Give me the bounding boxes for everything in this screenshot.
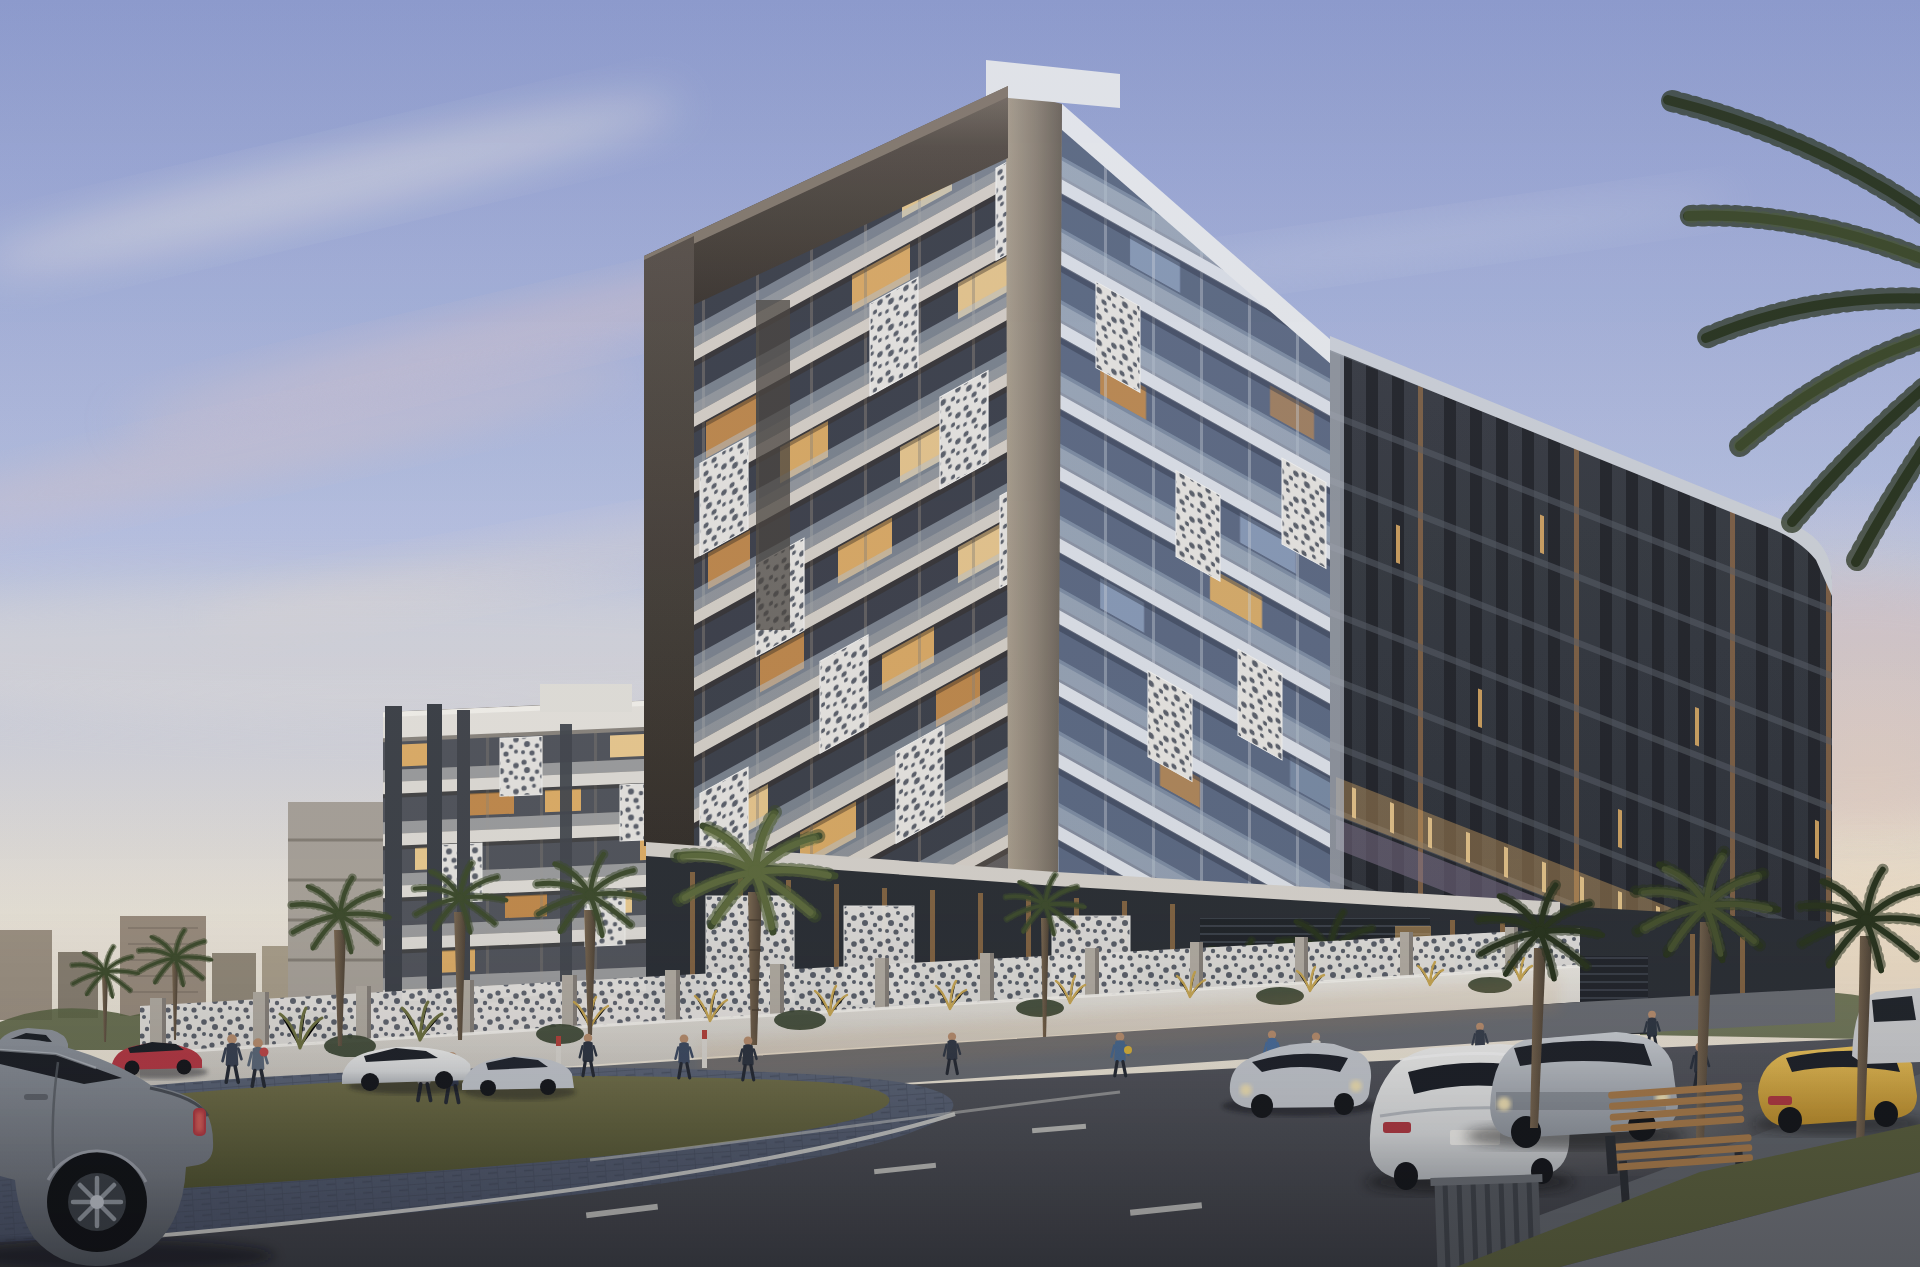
color-grade-overlay [0,0,1920,1267]
render-canvas [0,0,1920,1267]
architectural-render-scene [0,0,1920,1267]
